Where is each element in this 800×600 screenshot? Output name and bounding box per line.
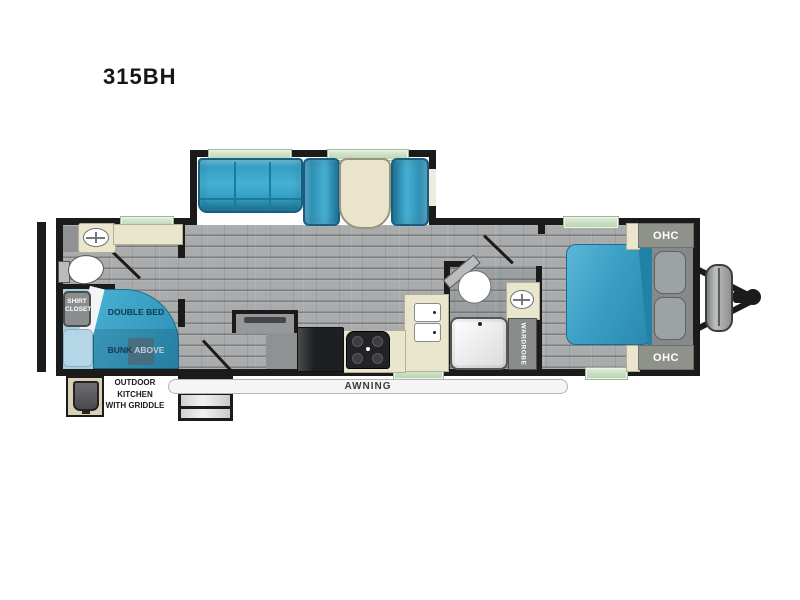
- outdoor-kitchen-line3: WITH GRIDDLE: [106, 401, 165, 410]
- wardrobe-cabinet: WARDROBE: [508, 318, 537, 370]
- ohc-bottom-label: OHC: [653, 352, 679, 364]
- shirt-closet: SHIRT CLOSET: [63, 291, 91, 327]
- shirt-closet-label-1: SHIRT: [67, 298, 87, 305]
- griddle-icon: [73, 381, 99, 411]
- pillow: [654, 251, 686, 294]
- dinette-bench-right: [391, 158, 429, 226]
- ohc-top-label: OHC: [653, 230, 679, 242]
- bath-cabinet: [63, 226, 78, 252]
- outdoor-kitchen-line2: KITCHEN: [117, 390, 153, 399]
- bunk-label-dark: BUNK: [108, 345, 133, 355]
- pillow: [654, 297, 686, 340]
- sink-icon: [510, 290, 534, 309]
- window-icon: [429, 169, 436, 206]
- sink-icon: [83, 228, 109, 247]
- base-cabinet: [266, 333, 297, 369]
- bunk-ladder-pad: [63, 329, 93, 367]
- wardrobe-label: WARDROBE: [519, 323, 526, 366]
- kitchen-sink: [414, 323, 441, 342]
- hitch-ball: [745, 289, 761, 305]
- master-bed: [566, 244, 652, 345]
- sofa: [198, 158, 303, 213]
- wall-partition: [538, 225, 545, 234]
- awning-bar: AWNING: [168, 379, 568, 394]
- galley-cabinet: [113, 224, 183, 245]
- stove-icon: [346, 331, 390, 369]
- tv-stand: [232, 310, 298, 333]
- outdoor-kitchen: [66, 376, 104, 417]
- page-title: 315BH: [103, 64, 176, 90]
- floorplan-canvas: 315BH: [0, 0, 800, 600]
- window-icon: [586, 368, 627, 379]
- shower-icon: [450, 317, 508, 370]
- outdoor-kitchen-label: OUTDOOR KITCHEN WITH GRIDDLE: [102, 377, 168, 412]
- rear-bumper: [37, 222, 46, 372]
- wall-partition: [178, 299, 185, 327]
- dinette-table: [339, 158, 391, 229]
- dinette-bench-left: [303, 158, 340, 226]
- window-icon: [564, 217, 618, 228]
- shirt-closet-label-2: CLOSET: [65, 306, 91, 313]
- overhead-cabinet: OHC: [638, 223, 694, 248]
- double-bed-label: DOUBLE BED: [93, 307, 179, 317]
- overhead-cabinet: OHC: [638, 345, 694, 370]
- kitchen-sink: [414, 303, 441, 322]
- awning-label: AWNING: [344, 381, 391, 392]
- bunk-label-light: ABOVE: [134, 345, 164, 355]
- refrigerator: [297, 327, 344, 372]
- outdoor-kitchen-line1: OUTDOOR: [115, 378, 156, 387]
- propane-tank: [705, 264, 733, 332]
- tv-icon: [244, 317, 286, 323]
- bunk-label: BUNK ABOVE: [93, 345, 179, 355]
